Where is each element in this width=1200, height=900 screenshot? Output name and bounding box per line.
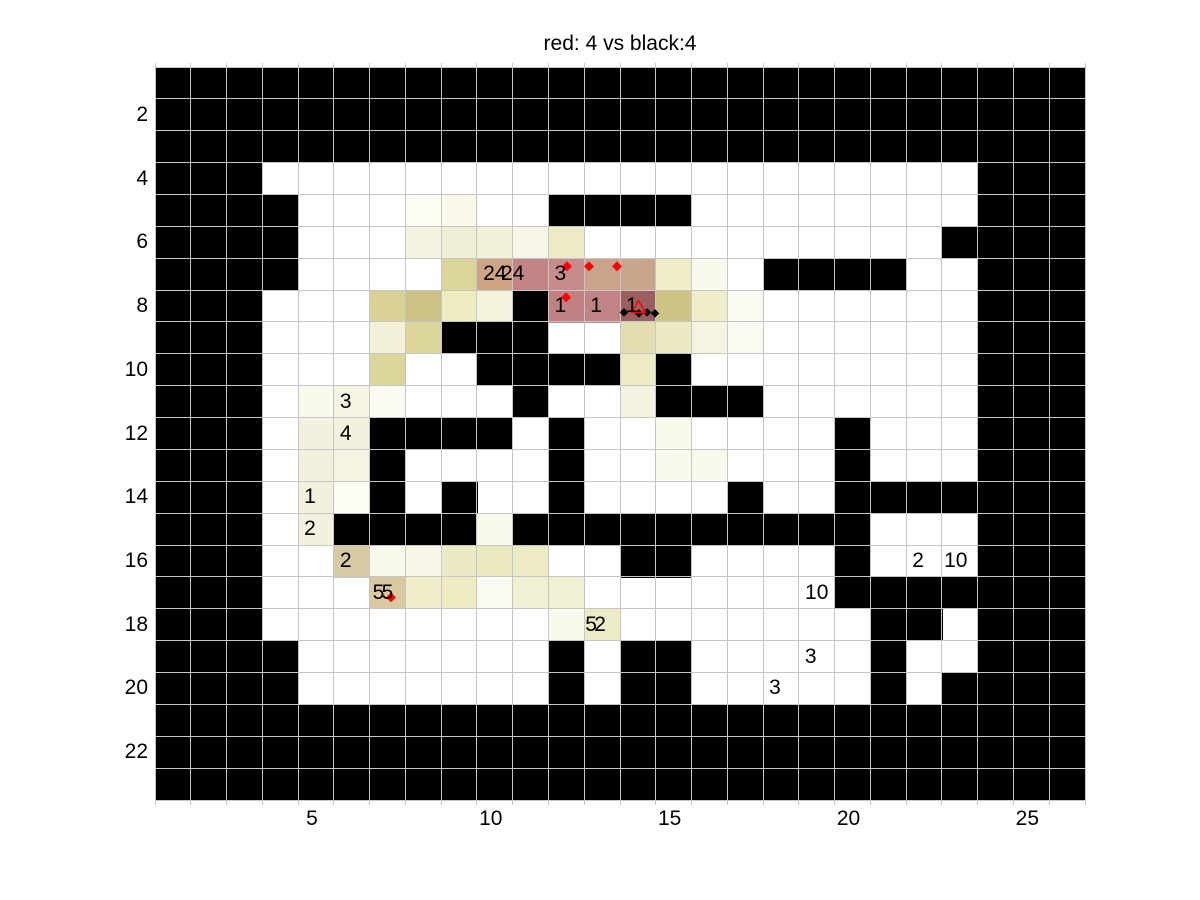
grid-line-vertical bbox=[906, 63, 907, 805]
heat-cell bbox=[620, 386, 656, 418]
grid-line-horizontal bbox=[155, 672, 1085, 673]
wall-cell bbox=[620, 673, 656, 705]
wall-cell bbox=[548, 99, 584, 131]
wall-cell bbox=[155, 704, 191, 736]
wall-cell bbox=[906, 67, 942, 99]
wall-cell bbox=[405, 67, 441, 99]
wall-cell bbox=[656, 194, 692, 226]
wall-cell bbox=[870, 736, 906, 768]
wall-cell bbox=[584, 513, 620, 545]
heat-cell bbox=[656, 449, 692, 481]
wall-cell bbox=[513, 513, 549, 545]
wall-cell bbox=[405, 513, 441, 545]
wall-cell bbox=[835, 418, 871, 450]
grid-line-horizontal bbox=[155, 290, 1085, 291]
wall-cell bbox=[870, 481, 906, 513]
wall-cell bbox=[441, 99, 477, 131]
grid-line-vertical bbox=[941, 63, 942, 805]
wall-cell bbox=[262, 704, 298, 736]
wall-cell bbox=[513, 768, 549, 800]
wall-cell bbox=[227, 386, 263, 418]
wall-cell bbox=[191, 354, 227, 386]
wall-cell bbox=[405, 768, 441, 800]
wall-cell bbox=[1013, 704, 1049, 736]
wall-cell bbox=[942, 673, 978, 705]
wall-cell bbox=[370, 768, 406, 800]
wall-cell bbox=[405, 736, 441, 768]
wall-cell bbox=[1049, 704, 1085, 736]
grid-line-horizontal bbox=[155, 576, 1085, 577]
wall-cell bbox=[763, 513, 799, 545]
wall-cell bbox=[370, 418, 406, 450]
wall-cell bbox=[298, 99, 334, 131]
grid-line-horizontal bbox=[155, 545, 1085, 546]
wall-cell bbox=[1049, 163, 1085, 195]
wall-cell bbox=[191, 67, 227, 99]
heat-cell bbox=[477, 513, 513, 545]
wall-cell bbox=[799, 99, 835, 131]
heat-cell bbox=[370, 290, 406, 322]
wall-cell bbox=[441, 418, 477, 450]
y-axis-tick-label: 12 bbox=[0, 422, 148, 446]
wall-cell bbox=[155, 513, 191, 545]
wall-cell bbox=[1049, 609, 1085, 641]
wall-cell bbox=[870, 641, 906, 673]
heat-cell bbox=[548, 226, 584, 258]
wall-cell bbox=[227, 131, 263, 163]
wall-cell bbox=[620, 99, 656, 131]
wall-cell bbox=[942, 226, 978, 258]
heat-cell bbox=[620, 322, 656, 354]
grid-line-horizontal bbox=[155, 258, 1085, 259]
wall-cell bbox=[155, 322, 191, 354]
wall-cell bbox=[227, 768, 263, 800]
wall-cell bbox=[727, 386, 763, 418]
wall-cell bbox=[656, 641, 692, 673]
wall-cell bbox=[548, 194, 584, 226]
wall-cell bbox=[155, 194, 191, 226]
wall-cell bbox=[1049, 449, 1085, 481]
wall-cell bbox=[191, 545, 227, 577]
wall-cell bbox=[906, 704, 942, 736]
wall-cell bbox=[1049, 290, 1085, 322]
grid-line-horizontal bbox=[155, 481, 1085, 482]
heat-cell bbox=[513, 226, 549, 258]
wall-cell bbox=[477, 768, 513, 800]
wall-cell bbox=[1013, 386, 1049, 418]
wall-cell bbox=[978, 386, 1014, 418]
grid-line-vertical bbox=[476, 63, 477, 805]
wall-cell bbox=[441, 704, 477, 736]
wall-cell bbox=[870, 131, 906, 163]
grid-line-horizontal bbox=[155, 417, 1085, 418]
wall-cell bbox=[906, 99, 942, 131]
heat-cell bbox=[692, 449, 728, 481]
grid-line-horizontal bbox=[155, 385, 1085, 386]
wall-cell bbox=[978, 258, 1014, 290]
grid-line-horizontal bbox=[155, 321, 1085, 322]
grid-line-vertical bbox=[369, 63, 370, 805]
wall-cell bbox=[978, 418, 1014, 450]
wall-cell bbox=[477, 704, 513, 736]
wall-cell bbox=[548, 513, 584, 545]
wall-cell bbox=[763, 768, 799, 800]
wall-cell bbox=[1013, 673, 1049, 705]
wall-cell bbox=[262, 258, 298, 290]
wall-cell bbox=[835, 67, 871, 99]
heat-cell bbox=[441, 577, 477, 609]
wall-cell bbox=[978, 226, 1014, 258]
wall-cell bbox=[191, 258, 227, 290]
wall-cell bbox=[155, 449, 191, 481]
wall-cell bbox=[155, 354, 191, 386]
wall-cell bbox=[405, 418, 441, 450]
wall-cell bbox=[978, 194, 1014, 226]
wall-cell bbox=[620, 131, 656, 163]
wall-cell bbox=[227, 290, 263, 322]
wall-cell bbox=[227, 481, 263, 513]
wall-cell bbox=[1013, 768, 1049, 800]
heat-cell bbox=[727, 322, 763, 354]
wall-cell bbox=[191, 99, 227, 131]
wall-cell bbox=[405, 131, 441, 163]
wall-cell bbox=[978, 99, 1014, 131]
cell-value-label: 10 bbox=[944, 549, 967, 573]
wall-cell bbox=[870, 609, 906, 641]
wall-cell bbox=[370, 131, 406, 163]
wall-cell bbox=[727, 704, 763, 736]
wall-cell bbox=[942, 99, 978, 131]
wall-cell bbox=[227, 673, 263, 705]
wall-cell bbox=[298, 736, 334, 768]
wall-cell bbox=[548, 418, 584, 450]
grid-line-vertical bbox=[1085, 63, 1086, 805]
grid-line-vertical bbox=[226, 63, 227, 805]
wall-cell bbox=[799, 67, 835, 99]
heat-cell bbox=[370, 386, 406, 418]
wall-cell bbox=[763, 99, 799, 131]
grid-line-vertical bbox=[441, 63, 442, 805]
cell-value-label: 1 bbox=[555, 294, 567, 318]
grid-line-vertical bbox=[1013, 63, 1014, 805]
wall-cell bbox=[870, 768, 906, 800]
wall-cell bbox=[227, 641, 263, 673]
wall-cell bbox=[513, 131, 549, 163]
wall-cell bbox=[620, 513, 656, 545]
heat-cell bbox=[334, 449, 370, 481]
wall-cell bbox=[1049, 258, 1085, 290]
wall-cell bbox=[1013, 226, 1049, 258]
wall-cell bbox=[942, 736, 978, 768]
wall-cell bbox=[548, 736, 584, 768]
heat-cell bbox=[477, 577, 513, 609]
wall-cell bbox=[1013, 449, 1049, 481]
wall-cell bbox=[1049, 131, 1085, 163]
wall-cell bbox=[441, 322, 477, 354]
wall-cell bbox=[334, 513, 370, 545]
wall-cell bbox=[799, 513, 835, 545]
wall-cell bbox=[513, 322, 549, 354]
wall-cell bbox=[870, 673, 906, 705]
wall-cell bbox=[155, 481, 191, 513]
wall-cell bbox=[870, 67, 906, 99]
wall-cell bbox=[155, 609, 191, 641]
wall-cell bbox=[942, 577, 978, 609]
cell-value-label: 4 bbox=[340, 422, 352, 446]
wall-cell bbox=[763, 704, 799, 736]
wall-cell bbox=[656, 736, 692, 768]
wall-cell bbox=[978, 513, 1014, 545]
grid-line-horizontal bbox=[155, 98, 1085, 99]
wall-cell bbox=[441, 513, 477, 545]
heat-cell bbox=[405, 577, 441, 609]
heat-cell bbox=[405, 290, 441, 322]
wall-cell bbox=[835, 513, 871, 545]
wall-cell bbox=[1013, 194, 1049, 226]
heat-cell bbox=[656, 258, 692, 290]
wall-cell bbox=[584, 99, 620, 131]
wall-cell bbox=[835, 577, 871, 609]
wall-cell bbox=[1049, 513, 1085, 545]
heat-cell bbox=[441, 258, 477, 290]
wall-cell bbox=[727, 131, 763, 163]
heat-cell bbox=[298, 386, 334, 418]
wall-cell bbox=[227, 704, 263, 736]
wall-cell bbox=[155, 768, 191, 800]
wall-cell bbox=[191, 641, 227, 673]
wall-cell bbox=[262, 641, 298, 673]
cell-value-label: 5 bbox=[382, 581, 394, 605]
y-axis-tick-label: 8 bbox=[0, 294, 148, 318]
grid-line-horizontal bbox=[155, 162, 1085, 163]
grid-line-horizontal bbox=[155, 353, 1085, 354]
cell-value-label: 3 bbox=[769, 676, 781, 700]
wall-cell bbox=[727, 481, 763, 513]
wall-cell bbox=[227, 545, 263, 577]
wall-cell bbox=[191, 322, 227, 354]
wall-cell bbox=[191, 226, 227, 258]
wall-cell bbox=[370, 99, 406, 131]
wall-cell bbox=[1049, 194, 1085, 226]
wall-cell bbox=[870, 704, 906, 736]
cell-value-label: 1 bbox=[590, 294, 602, 318]
wall-cell bbox=[978, 545, 1014, 577]
wall-cell bbox=[1049, 226, 1085, 258]
heat-cell bbox=[441, 226, 477, 258]
wall-cell bbox=[870, 258, 906, 290]
wall-cell bbox=[1013, 258, 1049, 290]
wall-cell bbox=[191, 704, 227, 736]
grid-line-horizontal bbox=[155, 130, 1085, 131]
wall-cell bbox=[763, 131, 799, 163]
chart-title: red: 4 vs black:4 bbox=[155, 32, 1085, 56]
wall-cell bbox=[227, 418, 263, 450]
wall-cell bbox=[799, 736, 835, 768]
heat-cell bbox=[513, 545, 549, 577]
wall-cell bbox=[870, 577, 906, 609]
wall-cell bbox=[155, 577, 191, 609]
wall-cell bbox=[548, 673, 584, 705]
wall-cell bbox=[835, 481, 871, 513]
wall-cell bbox=[1049, 386, 1085, 418]
grid-line-vertical bbox=[1049, 63, 1050, 805]
wall-cell bbox=[978, 290, 1014, 322]
heat-cell bbox=[656, 322, 692, 354]
cell-value-label: 24 bbox=[501, 262, 524, 286]
heat-cell bbox=[405, 194, 441, 226]
wall-cell bbox=[1013, 163, 1049, 195]
grid-line-horizontal bbox=[155, 449, 1085, 450]
wall-cell bbox=[835, 449, 871, 481]
wall-cell bbox=[978, 163, 1014, 195]
wall-cell bbox=[155, 258, 191, 290]
wall-cell bbox=[692, 513, 728, 545]
heat-cell bbox=[548, 577, 584, 609]
wall-cell bbox=[1013, 641, 1049, 673]
wall-cell bbox=[1013, 481, 1049, 513]
cell-value-label: 3 bbox=[805, 645, 817, 669]
wall-cell bbox=[191, 736, 227, 768]
wall-cell bbox=[656, 131, 692, 163]
wall-cell bbox=[334, 736, 370, 768]
wall-cell bbox=[191, 449, 227, 481]
wall-cell bbox=[513, 386, 549, 418]
wall-cell bbox=[155, 418, 191, 450]
wall-cell bbox=[548, 641, 584, 673]
wall-cell bbox=[978, 67, 1014, 99]
y-axis-tick-label: 18 bbox=[0, 613, 148, 637]
wall-cell bbox=[835, 545, 871, 577]
heat-cell bbox=[656, 418, 692, 450]
cell-value-label: 2 bbox=[340, 549, 352, 573]
wall-cell bbox=[620, 704, 656, 736]
wall-cell bbox=[763, 67, 799, 99]
wall-cell bbox=[656, 386, 692, 418]
wall-cell bbox=[1049, 418, 1085, 450]
wall-cell bbox=[692, 131, 728, 163]
wall-cell bbox=[298, 768, 334, 800]
heat-cell bbox=[477, 290, 513, 322]
grid-line-vertical bbox=[620, 63, 621, 805]
grid-line-vertical bbox=[655, 63, 656, 805]
wall-cell bbox=[906, 131, 942, 163]
wall-cell bbox=[978, 131, 1014, 163]
wall-cell bbox=[513, 67, 549, 99]
wall-cell bbox=[656, 768, 692, 800]
cell-value-label: 2 bbox=[912, 549, 924, 573]
wall-cell bbox=[441, 481, 477, 513]
heat-cell bbox=[405, 545, 441, 577]
wall-cell bbox=[656, 513, 692, 545]
wall-cell bbox=[1013, 354, 1049, 386]
wall-cell bbox=[262, 226, 298, 258]
wall-cell bbox=[978, 322, 1014, 354]
x-axis-tick-label: 25 bbox=[1016, 807, 1039, 831]
wall-cell bbox=[155, 641, 191, 673]
wall-cell bbox=[477, 131, 513, 163]
grid-line-vertical bbox=[155, 63, 156, 805]
wall-cell bbox=[1013, 131, 1049, 163]
heat-cell bbox=[405, 226, 441, 258]
wall-cell bbox=[227, 449, 263, 481]
heat-cell bbox=[370, 322, 406, 354]
wall-cell bbox=[1013, 577, 1049, 609]
wall-cell bbox=[477, 322, 513, 354]
grid-line-vertical bbox=[262, 63, 263, 805]
grid-line-horizontal bbox=[155, 67, 1085, 68]
wall-cell bbox=[477, 67, 513, 99]
grid-line-vertical bbox=[405, 63, 406, 805]
x-axis-tick-label: 20 bbox=[837, 807, 860, 831]
wall-cell bbox=[262, 768, 298, 800]
cell-value-label: 3 bbox=[555, 262, 567, 286]
wall-cell bbox=[656, 673, 692, 705]
heat-cell bbox=[298, 449, 334, 481]
wall-cell bbox=[155, 99, 191, 131]
wall-cell bbox=[191, 386, 227, 418]
wall-cell bbox=[227, 513, 263, 545]
wall-cell bbox=[405, 704, 441, 736]
grid-line-horizontal bbox=[155, 608, 1085, 609]
wall-cell bbox=[441, 736, 477, 768]
wall-cell bbox=[978, 736, 1014, 768]
x-axis-tick-label: 10 bbox=[479, 807, 502, 831]
wall-cell bbox=[1049, 99, 1085, 131]
heat-cell bbox=[370, 354, 406, 386]
wall-cell bbox=[835, 131, 871, 163]
cell-value-label: 2 bbox=[594, 613, 606, 637]
wall-cell bbox=[548, 449, 584, 481]
wall-cell bbox=[978, 354, 1014, 386]
wall-cell bbox=[942, 67, 978, 99]
wall-cell bbox=[334, 768, 370, 800]
wall-cell bbox=[1013, 513, 1049, 545]
y-axis-tick-label: 20 bbox=[0, 676, 148, 700]
wall-cell bbox=[191, 577, 227, 609]
wall-cell bbox=[835, 736, 871, 768]
wall-cell bbox=[227, 577, 263, 609]
wall-cell bbox=[870, 99, 906, 131]
wall-cell bbox=[513, 704, 549, 736]
wall-cell bbox=[370, 513, 406, 545]
y-axis-tick-label: 2 bbox=[0, 103, 148, 127]
wall-cell bbox=[1013, 322, 1049, 354]
cell-value-label: 2 bbox=[304, 517, 316, 541]
cell-value-label: 1 bbox=[304, 485, 316, 509]
wall-cell bbox=[692, 386, 728, 418]
grid-line-horizontal bbox=[155, 226, 1085, 227]
wall-cell bbox=[191, 609, 227, 641]
plot-area: 242431113412255522101033 bbox=[155, 67, 1085, 800]
wall-cell bbox=[155, 290, 191, 322]
grid-line-horizontal bbox=[155, 800, 1085, 801]
wall-cell bbox=[334, 99, 370, 131]
wall-cell bbox=[370, 67, 406, 99]
wall-cell bbox=[441, 67, 477, 99]
wall-cell bbox=[584, 131, 620, 163]
wall-cell bbox=[1049, 481, 1085, 513]
heat-cell bbox=[620, 258, 656, 290]
wall-cell bbox=[942, 481, 978, 513]
wall-cell bbox=[513, 736, 549, 768]
grid-line-vertical bbox=[691, 63, 692, 805]
wall-cell bbox=[692, 704, 728, 736]
grid-line-vertical bbox=[977, 63, 978, 805]
wall-cell bbox=[191, 418, 227, 450]
wall-cell bbox=[155, 131, 191, 163]
wall-cell bbox=[262, 673, 298, 705]
wall-cell bbox=[370, 704, 406, 736]
